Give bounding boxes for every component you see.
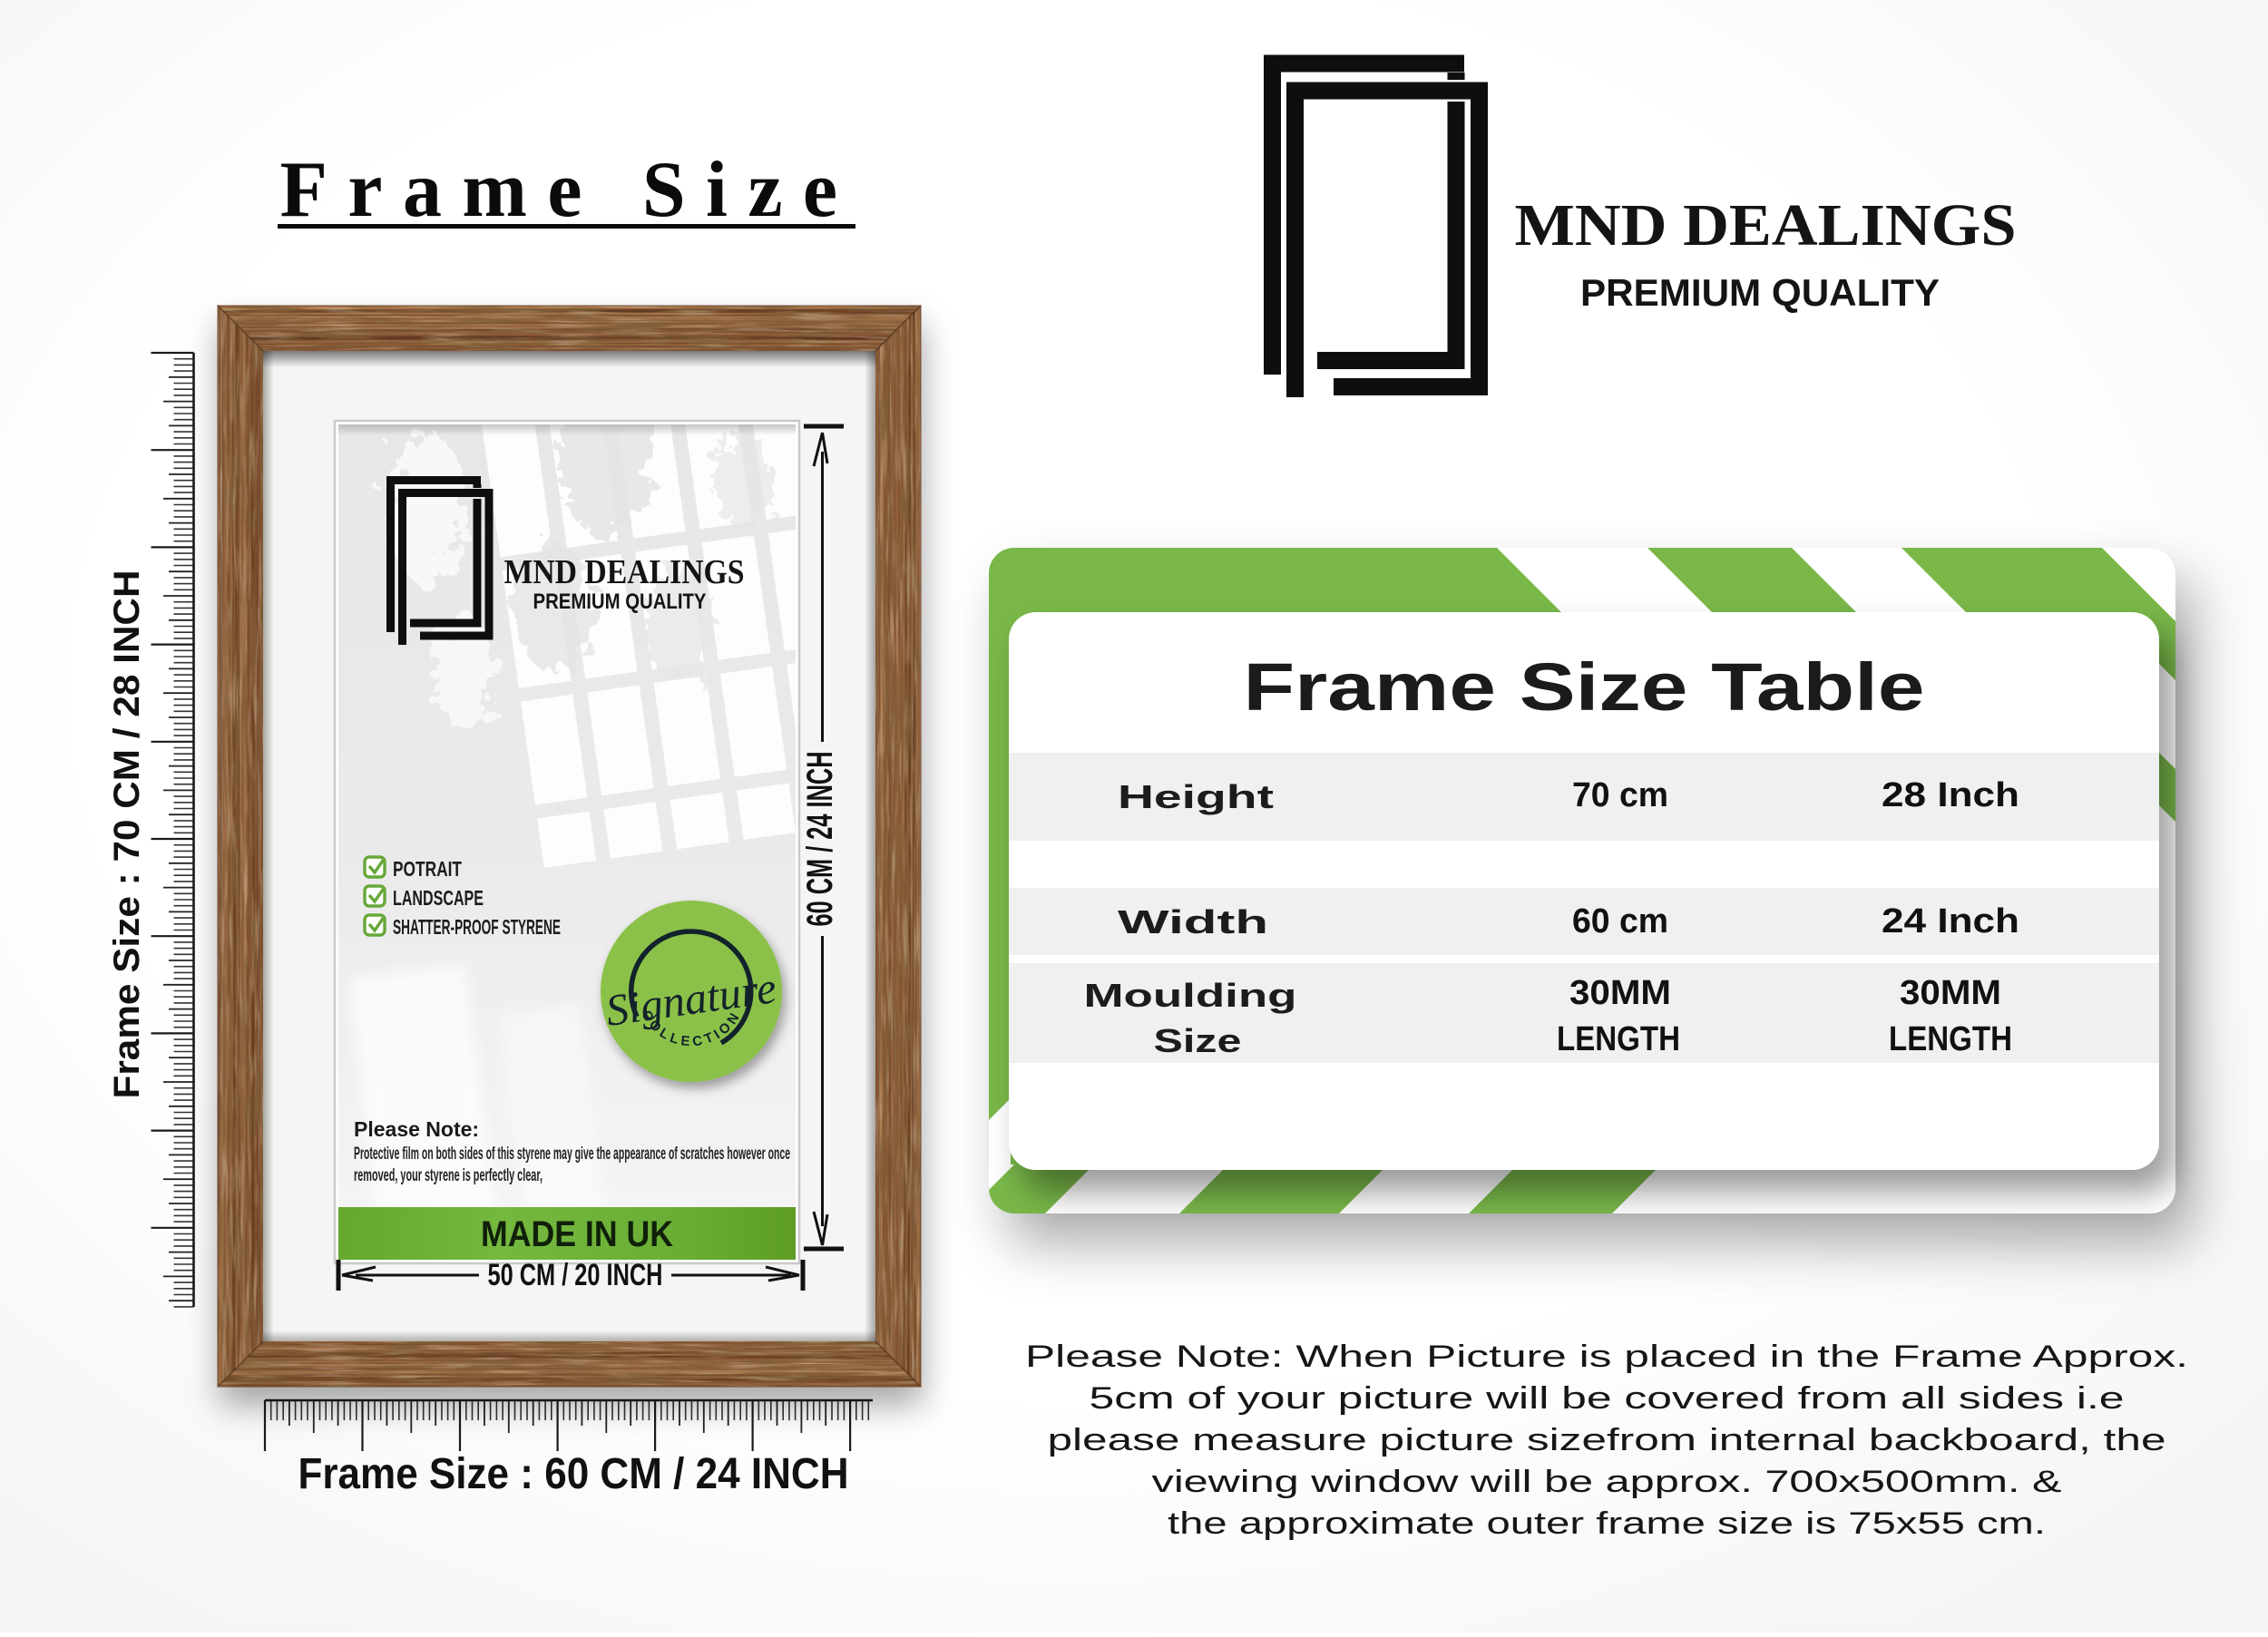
svg-text:LENGTH: LENGTH [1557, 1020, 1680, 1058]
svg-text:70 cm: 70 cm [1572, 776, 1668, 814]
svg-text:50 CM / 20 INCH: 50 CM / 20 INCH [488, 1258, 663, 1292]
svg-text:Frame Size: Frame Size [280, 146, 858, 234]
svg-text:Width: Width [1118, 903, 1268, 940]
svg-text:Frame Size Table: Frame Size Table [1244, 649, 1925, 725]
svg-text:Frame Size : 70 CM / 28 INCH: Frame Size : 70 CM / 28 INCH [107, 570, 147, 1099]
svg-text:SHATTER-PROOF STYRENE: SHATTER-PROOF STYRENE [393, 915, 561, 939]
svg-text:28 Inch: 28 Inch [1882, 776, 2019, 814]
svg-text:Height: Height [1118, 778, 1274, 815]
svg-text:viewing window will be approx.: viewing window will be approx. 700x500mm… [1152, 1465, 2062, 1499]
svg-text:Moulding: Moulding [1084, 977, 1297, 1014]
svg-text:Protective film on both sides: Protective film on both sides of this st… [354, 1145, 790, 1164]
svg-text:Please Note: When Picture is p: Please Note: When Picture is placed in t… [1025, 1340, 2188, 1374]
svg-text:5cm of your picture will be co: 5cm of your picture will be covered from… [1090, 1381, 2125, 1416]
svg-text:MND DEALINGS: MND DEALINGS [1515, 192, 2017, 258]
svg-text:Size: Size [1154, 1022, 1242, 1059]
svg-text:POTRAIT: POTRAIT [393, 857, 462, 881]
svg-text:60 cm: 60 cm [1572, 902, 1668, 940]
svg-text:LENGTH: LENGTH [1889, 1020, 2012, 1058]
svg-text:LANDSCAPE: LANDSCAPE [393, 886, 484, 910]
svg-text:Please Note:: Please Note: [354, 1117, 479, 1141]
svg-text:30MM: 30MM [1569, 974, 1671, 1012]
svg-text:please measure picture sizefro: please measure picture sizefrom internal… [1048, 1423, 2166, 1457]
svg-text:30MM: 30MM [1900, 974, 2001, 1012]
svg-text:removed, your styrene is perfe: removed, your styrene is perfectly clear… [354, 1166, 543, 1185]
svg-text:MADE IN UK: MADE IN UK [481, 1214, 673, 1254]
svg-text:60 CM / 24 INCH: 60 CM / 24 INCH [800, 752, 840, 927]
svg-text:Frame Size : 60 CM / 24 INCH: Frame Size : 60 CM / 24 INCH [298, 1450, 849, 1498]
svg-text:MND DEALINGS: MND DEALINGS [504, 553, 745, 591]
svg-text:the approximate outer frame si: the approximate outer frame size is 75x5… [1168, 1506, 2046, 1541]
svg-text:PREMIUM QUALITY: PREMIUM QUALITY [533, 590, 707, 614]
svg-text:24 Inch: 24 Inch [1882, 902, 2019, 940]
svg-text:PREMIUM QUALITY: PREMIUM QUALITY [1580, 271, 1940, 314]
